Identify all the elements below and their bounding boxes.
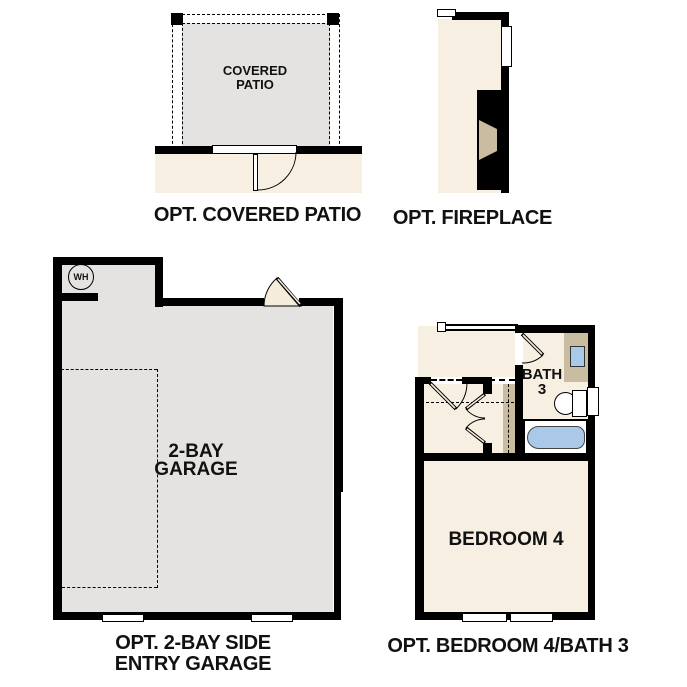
patio-door-opening	[212, 145, 297, 154]
patio-post-icon	[171, 13, 183, 25]
patio-post-icon	[327, 13, 339, 25]
chase-strip	[503, 384, 515, 453]
garage-caption-line1: OPT. 2-BAY SIDE	[115, 632, 271, 654]
garage-window-icon	[102, 614, 144, 622]
opening-header-dashed	[489, 379, 515, 381]
patio-room-label: COVERED PATIO	[195, 64, 315, 92]
double-door-jamb	[483, 443, 492, 453]
garage-top-wall	[53, 257, 163, 265]
cased-opening-icon	[437, 9, 456, 17]
sink-icon	[570, 346, 585, 367]
closet-top-wall	[415, 377, 431, 384]
garage-right-wall	[334, 490, 341, 620]
window-icon	[501, 26, 512, 67]
bay-outline-dashed	[56, 369, 157, 370]
plan-right-wall	[588, 325, 595, 620]
toilet-tank-icon	[572, 390, 587, 417]
bedroom-window-icon	[510, 613, 553, 622]
hall-interior	[418, 326, 515, 377]
bath-window-icon	[587, 387, 599, 416]
patio-caption: OPT. COVERED PATIO	[140, 205, 375, 226]
garage-bottom-wall	[53, 612, 341, 620]
house-interior	[155, 154, 362, 193]
garage-room-label-line2: GARAGE	[154, 459, 237, 480]
patio-door-leaf	[253, 154, 258, 191]
water-heater-partition-wall	[62, 293, 98, 301]
plan-left-wall	[415, 377, 424, 620]
bedroom-room-label: BEDROOM 4	[424, 530, 588, 551]
bathtub-icon	[527, 426, 585, 449]
window-end-cap	[437, 322, 446, 332]
fireplace-top-wall	[452, 12, 508, 20]
garage-door-opening	[264, 299, 299, 306]
fireplace-caption: OPT. FIREPLACE	[390, 208, 555, 229]
water-heater-label: WH	[74, 272, 89, 282]
bay-outline-dashed	[62, 587, 157, 588]
garage-room-label: 2-BAY GARAGE	[130, 443, 262, 479]
fireplace-icon	[477, 90, 508, 190]
bath-top-wall	[515, 325, 595, 333]
garage-caption: OPT. 2-BAY SIDE ENTRY GARAGE	[63, 633, 323, 675]
garage-left-wall	[53, 257, 62, 620]
double-door-jamb	[483, 377, 492, 394]
bedroom-caption: OPT. BEDROOM 4/BATH 3	[378, 636, 638, 657]
chase-centerline-dashed	[508, 384, 509, 453]
garage-window-icon	[251, 614, 293, 622]
patio-room-label-line1: COVERED	[223, 63, 287, 78]
bath-room-label: BATH 3	[516, 367, 568, 397]
opening-header-dashed	[431, 379, 462, 381]
bath-room-label-line2: 3	[538, 381, 546, 398]
water-heater-icon: WH	[68, 264, 94, 290]
garage-right-wall	[334, 298, 343, 492]
floor-plan-options-sheet: COVERED PATIO OPT. COVERED PATIO OPT. FI…	[0, 0, 687, 687]
bedroom-window-icon	[462, 613, 507, 622]
window-icon	[440, 324, 518, 331]
closet-rod-dashed	[421, 402, 514, 403]
garage-caption-line2: ENTRY GARAGE	[115, 653, 271, 675]
patio-room-label-line2: PATIO	[236, 77, 274, 92]
garage-top-wall	[158, 298, 264, 306]
